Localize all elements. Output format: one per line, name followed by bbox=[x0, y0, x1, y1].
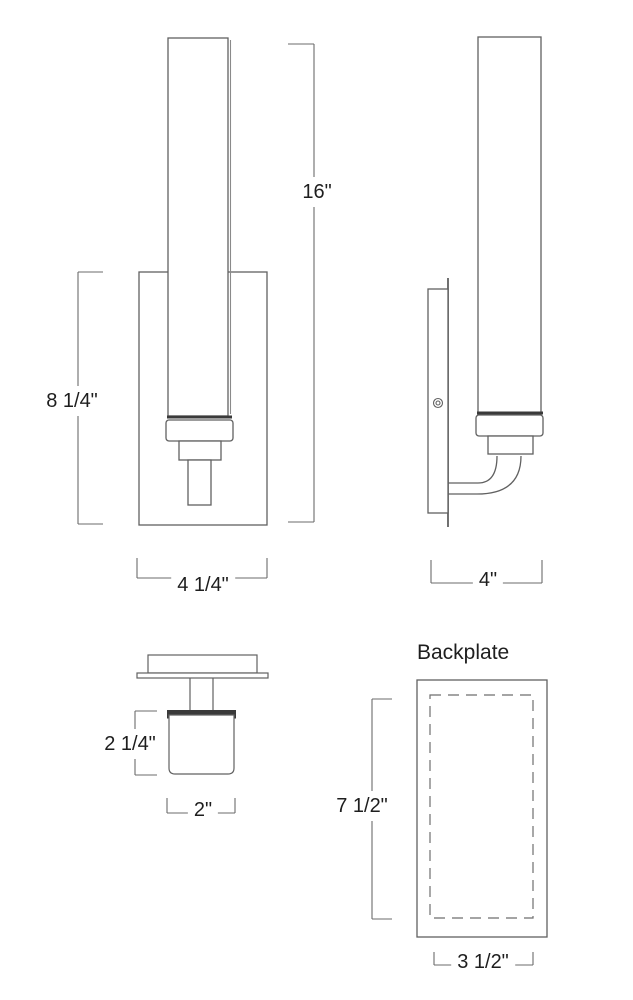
front-view bbox=[139, 38, 267, 525]
front-socket bbox=[179, 441, 221, 460]
side-socket bbox=[488, 436, 533, 454]
backplate-title: Backplate bbox=[417, 642, 509, 663]
side-arm-inner-curve bbox=[448, 456, 497, 483]
side-glass-tube bbox=[478, 37, 541, 415]
dimension-label-backplate-detail-height: 7 1/2" bbox=[330, 791, 394, 821]
sconce-spec-drawing: 16" 8 1/4" 4 1/4" 4" 2 1/4" 2" Backplate… bbox=[0, 0, 633, 1000]
side-view bbox=[428, 37, 543, 527]
backplate-view bbox=[372, 680, 547, 965]
side-collar bbox=[476, 415, 543, 436]
dimension-label-glass-height: 16" bbox=[296, 177, 337, 207]
dimension-label-backplate-height: 8 1/4" bbox=[40, 386, 104, 416]
dimension-label-glass-depth: 2 1/4" bbox=[98, 729, 162, 759]
top-plate-flange bbox=[137, 673, 268, 678]
dimension-label-glass-width: 2" bbox=[188, 795, 218, 825]
side-arm-outer-curve bbox=[448, 456, 521, 494]
front-stem bbox=[188, 460, 211, 505]
dimension-label-backplate-detail-width: 3 1/2" bbox=[451, 947, 515, 977]
screw-inner-circle bbox=[436, 401, 440, 405]
front-collar bbox=[166, 420, 233, 441]
top-glass-cap bbox=[167, 710, 236, 715]
dimension-label-depth: 4" bbox=[473, 565, 503, 595]
front-glass-tube bbox=[168, 38, 228, 416]
top-canopy bbox=[148, 655, 257, 673]
top-glass-cylinder bbox=[169, 715, 234, 774]
backplate-outline bbox=[417, 680, 547, 937]
dimension-label-backplate-width: 4 1/4" bbox=[171, 570, 235, 600]
drawing-linework bbox=[0, 0, 633, 1000]
